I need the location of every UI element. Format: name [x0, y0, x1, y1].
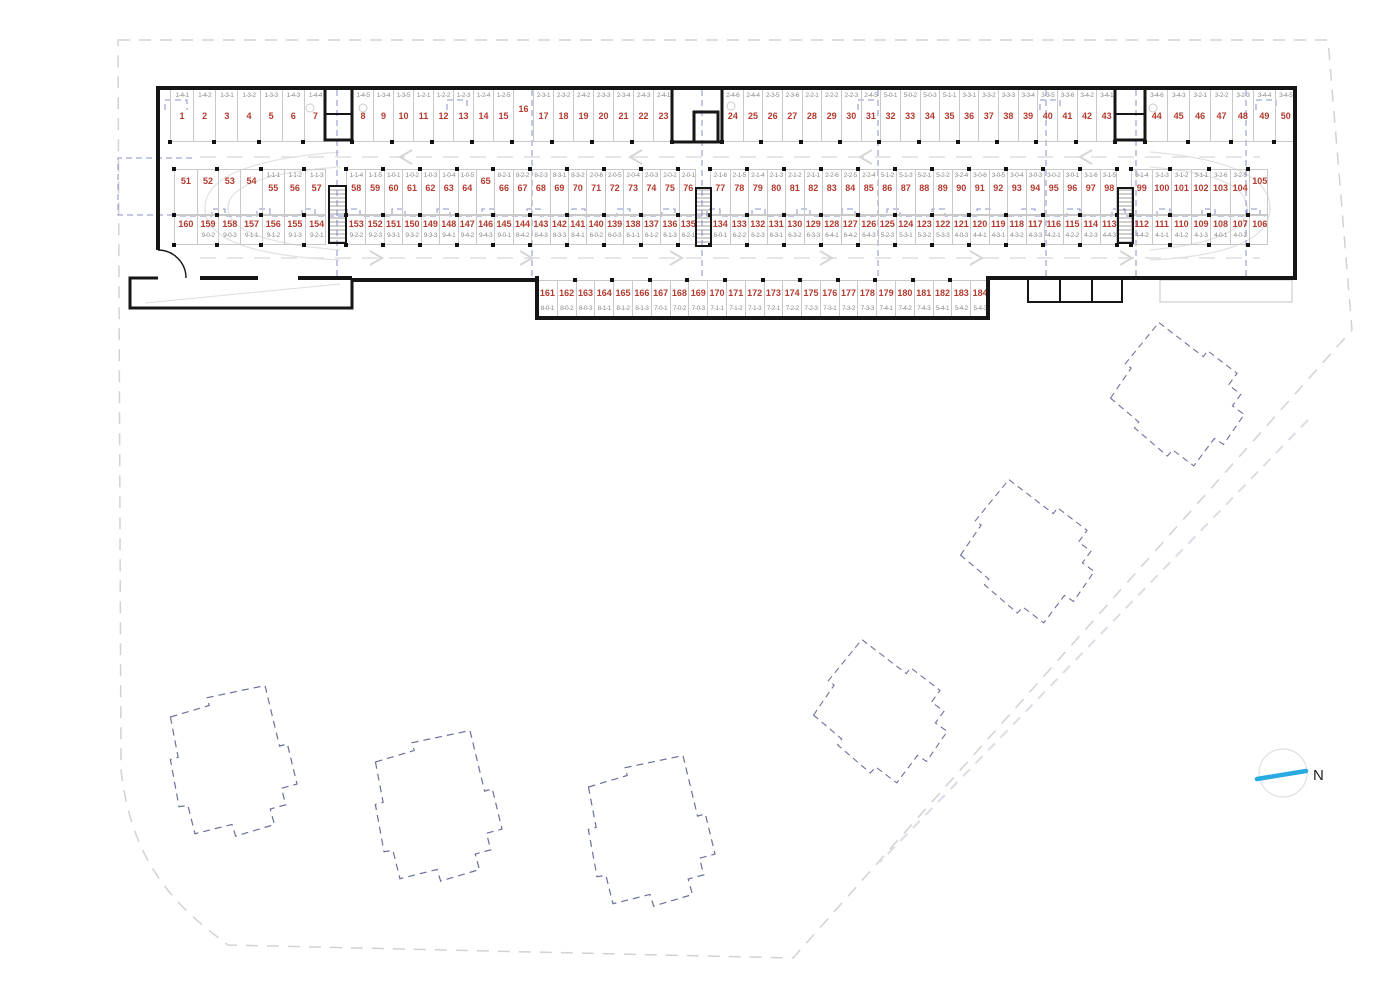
parking-stall: 54 [240, 170, 262, 214]
column-marker [745, 167, 749, 171]
column-marker [1074, 140, 1078, 144]
unit-code: 2-0-2 [663, 172, 676, 179]
column-marker [967, 213, 971, 217]
parking-stall: 3-0-493 [1007, 170, 1026, 214]
parking-stall: 3-2-247 [1210, 89, 1231, 141]
parking-stall: 1835-4-2 [951, 281, 970, 317]
stall-number: 22 [638, 111, 648, 121]
stall-number: 95 [1049, 183, 1059, 193]
stall-number: 172 [747, 288, 762, 298]
stall-number: 29 [827, 111, 837, 121]
unit-code: 2-4-2 [577, 92, 590, 99]
parking-stall: 1396-0-3 [605, 216, 623, 244]
parking-stall: 3-4-449 [1253, 89, 1274, 141]
unit-code: 2-3-2 [557, 92, 570, 99]
stall-number: 72 [610, 183, 620, 193]
column-marker [1168, 167, 1172, 171]
stall-number: 35 [944, 111, 954, 121]
stall-number: 8 [360, 111, 365, 121]
column-marker [168, 140, 172, 144]
stall-number: 42 [1082, 111, 1092, 121]
unit-code: 6-1-3 [663, 232, 676, 239]
column-marker [381, 167, 385, 171]
unit-code: 8-2-1 [497, 172, 510, 179]
unit-code: 5-3-1 [899, 232, 912, 239]
column-marker [1272, 140, 1276, 144]
unit-code: 6-2-1 [682, 232, 695, 239]
parking-stall: 1104-1-2 [1171, 216, 1191, 244]
column-marker [798, 316, 802, 320]
unit-code: 9-4-3 [479, 232, 492, 239]
column-marker [1246, 213, 1250, 217]
unit-code: 7-2-1 [767, 305, 780, 312]
stall-number: 93 [1012, 183, 1022, 193]
column-marker [1041, 243, 1045, 247]
column-marker [212, 140, 216, 144]
parking-stall: 1266-4-3 [859, 216, 878, 244]
stall-number: 135 [681, 219, 696, 229]
stall-number: 68 [536, 183, 546, 193]
parking-stall: 1144-2-3 [1081, 216, 1100, 244]
stall-number: 157 [244, 219, 259, 229]
stall-number: 136 [662, 219, 677, 229]
column-marker [350, 140, 354, 144]
stall-number: 152 [368, 219, 383, 229]
stall-number: 140 [589, 219, 604, 229]
unit-code: 3-1-1 [1194, 172, 1207, 179]
stall-number: 45 [1174, 111, 1184, 121]
parking-stall: 52 [197, 170, 219, 214]
unit-code: 3-0-2 [1047, 172, 1060, 179]
stall-number: 62 [425, 183, 435, 193]
unit-code: 7-1-1 [710, 305, 723, 312]
column-marker [720, 86, 724, 90]
unit-code: 5-2-1 [918, 172, 931, 179]
unit-code: 7-1-2 [729, 305, 742, 312]
stall-number: 67 [517, 183, 527, 193]
parking-stall: 3-4-143 [1096, 89, 1116, 141]
unit-code: 6-4-3 [862, 232, 875, 239]
floor-plan-canvas: N 1-4-111-4-221-3-131-3-241-3-351-4-361-… [0, 0, 1400, 989]
column-marker [1168, 243, 1172, 247]
stall-number: 176 [822, 288, 837, 298]
parking-stall: 2-4-425 [743, 89, 763, 141]
column-marker [1113, 140, 1117, 144]
unit-code: 9-0-3 [223, 232, 236, 239]
column-marker [259, 167, 263, 171]
parking-stall: 1-0-160 [384, 170, 402, 214]
unit-code: 2-1-4 [751, 172, 764, 179]
parking-stall: 1184-3-2 [1007, 216, 1026, 244]
parking-stall: 1134-4-3 [1100, 216, 1119, 244]
stall-number: 133 [732, 219, 747, 229]
parking-stall: 1154-2-2 [1063, 216, 1082, 244]
parking-stall: 1817-4-3 [914, 281, 933, 317]
unit-code: 4-4-2 [1135, 232, 1148, 239]
parking-stall: 1366-1-3 [660, 216, 678, 244]
stall-number: 128 [824, 219, 839, 229]
stall-number: 38 [1003, 111, 1013, 121]
parking-stall: 5-1-286 [878, 170, 897, 214]
parking-stall: 2-3-117 [533, 89, 553, 141]
stall-number: 43 [1102, 111, 1112, 121]
unit-code: 3-4-5 [1279, 92, 1292, 99]
stall-group: 1539-2-21529-2-31519-3-11509-3-21499-3-3… [346, 215, 696, 245]
stall-group: 1346-0-11336-2-21326-2-31316-3-11306-3-2… [710, 215, 1117, 245]
column-marker [676, 167, 680, 171]
column-marker [782, 243, 786, 247]
stall-number: 122 [935, 219, 950, 229]
parking-stall: 1727-1-3 [745, 281, 764, 317]
parking-stall: 1559-1-3 [284, 216, 306, 244]
unit-code: 6-2-2 [733, 232, 746, 239]
column-marker [1246, 167, 1250, 171]
unit-code: 3-3-3 [1002, 92, 1015, 99]
parking-stall: 3-2-348 [1232, 89, 1253, 141]
parking-stall: 1807-4-2 [895, 281, 914, 317]
column-marker [819, 213, 823, 217]
stall-number: 113 [1102, 219, 1117, 229]
stall-number: 75 [665, 183, 675, 193]
unit-code: 5-0-1 [884, 92, 897, 99]
column-marker [967, 167, 971, 171]
parking-stall: 1599-0-2 [197, 216, 219, 244]
column-marker [648, 316, 652, 320]
unit-code: 9-2-3 [369, 232, 382, 239]
parking-stall: 2-1-578 [730, 170, 749, 214]
parking-stall: 1376-1-2 [642, 216, 660, 244]
column-marker [565, 213, 569, 217]
column-marker [455, 213, 459, 217]
column-marker [745, 213, 749, 217]
column-marker [1229, 140, 1233, 144]
parking-stall: 160 [175, 216, 197, 244]
parking-stall: 2-3-218 [553, 89, 573, 141]
column-marker [930, 243, 934, 247]
parking-stall: 1214-0-3 [952, 216, 971, 244]
stall-number: 130 [787, 219, 802, 229]
stall-number: 90 [956, 183, 966, 193]
stall-number: 13 [458, 111, 468, 121]
stall-number: 111 [1155, 219, 1169, 229]
stall-number: 105 [1252, 176, 1267, 186]
stall-number: 144 [515, 219, 530, 229]
stall-number: 1 [180, 111, 185, 121]
parking-stall: 2-2-229 [821, 89, 841, 141]
parking-stall: 1-4-58 [353, 89, 373, 141]
unit-code: 3-4-3 [1172, 92, 1185, 99]
column-marker [676, 213, 680, 217]
stall-number: 44 [1152, 111, 1162, 121]
unit-code: 5-4-2 [955, 305, 968, 312]
parking-stall: 1489-4-1 [439, 216, 457, 244]
unit-code: 3-4-4 [1258, 92, 1271, 99]
parking-stall: 1777-3-2 [839, 281, 858, 317]
unit-code: 5-1-2 [881, 172, 894, 179]
unit-code: 1-2-3 [457, 92, 470, 99]
unit-code: 3-3-2 [982, 92, 995, 99]
stall-number: 181 [916, 288, 931, 298]
stall-group: 515253541-1-1551-1-2561-1-357 [174, 169, 326, 215]
column-marker [491, 243, 495, 247]
unit-code: 1-4-2 [198, 92, 211, 99]
stall-number: 179 [879, 288, 894, 298]
column-marker [1246, 243, 1250, 247]
column-marker [344, 243, 348, 247]
parking-stall: 1569-1-2 [262, 216, 284, 244]
unit-code: 8-2-2 [516, 172, 529, 179]
column-marker [259, 213, 263, 217]
column-marker [491, 213, 495, 217]
stall-number: 155 [287, 219, 302, 229]
stall-number: 19 [578, 111, 588, 121]
unit-code: 1-4-4 [309, 92, 322, 99]
unit-code: 1-3-2 [242, 92, 255, 99]
stall-number: 147 [460, 219, 475, 229]
column-marker [1207, 243, 1211, 247]
unit-code: 4-0-1 [1214, 232, 1227, 239]
parking-stall: 1225-3-3 [933, 216, 952, 244]
stall-number: 77 [715, 183, 725, 193]
stall-group: 3-1-4993-1-31003-1-21013-1-11023-2-61033… [1131, 169, 1268, 215]
stall-number: 80 [771, 183, 781, 193]
stall-number: 149 [423, 219, 438, 229]
column-marker [418, 167, 422, 171]
column-marker [344, 213, 348, 217]
parking-stall: 1459-0-1 [494, 216, 512, 244]
unit-code: 2-1-2 [788, 172, 801, 179]
stall-number: 116 [1046, 219, 1061, 229]
column-marker [630, 86, 634, 90]
column-marker [1078, 213, 1082, 217]
column-marker [995, 86, 999, 90]
column-marker [995, 140, 999, 144]
parking-stall: 1245-3-1 [896, 216, 915, 244]
column-marker [639, 167, 643, 171]
parking-stall: 1579-1-1 [240, 216, 262, 244]
parking-stall: 65 [476, 170, 494, 214]
unit-code: 1-3-4 [377, 92, 390, 99]
column-marker [986, 278, 990, 282]
column-marker [956, 86, 960, 90]
parking-stall: 8-2-368 [531, 170, 549, 214]
stall-number: 124 [898, 219, 913, 229]
unit-code: 3-1-5 [1103, 172, 1116, 179]
stall-number: 169 [691, 288, 706, 298]
parking-stall: 1499-3-3 [421, 216, 439, 244]
column-marker [455, 167, 459, 171]
stall-number: 153 [349, 219, 364, 229]
parking-stall: 3-3-338 [998, 89, 1018, 141]
unit-code: 1-4-3 [287, 92, 300, 99]
column-marker [838, 86, 842, 90]
parking-stall: 1668-1-3 [632, 281, 651, 317]
parking-stall: 2-2-485 [859, 170, 878, 214]
parking-stall: 5-1-135 [939, 89, 959, 141]
unit-code: 1-4-5 [356, 92, 369, 99]
stall-number: 36 [964, 111, 974, 121]
unit-code: 9-2-1 [310, 232, 323, 239]
parking-stall: 1-2-212 [433, 89, 453, 141]
parking-stall: 1-3-24 [237, 89, 259, 141]
stall-number: 59 [370, 183, 380, 193]
parking-stall: 5-0-334 [920, 89, 940, 141]
stall-number: 24 [728, 111, 738, 121]
unit-code: 1-1-3 [310, 172, 323, 179]
stall-number: 125 [880, 219, 895, 229]
column-marker [877, 86, 881, 90]
column-marker [799, 140, 803, 144]
column-marker [390, 86, 394, 90]
column-marker [257, 140, 261, 144]
unit-code: 2-2-2 [825, 92, 838, 99]
column-marker [535, 278, 539, 282]
column-marker [1115, 243, 1119, 247]
stall-number: 70 [573, 183, 583, 193]
unit-code: 3-2-6 [1214, 172, 1227, 179]
column-marker [390, 140, 394, 144]
column-marker [565, 243, 569, 247]
stall-number: 160 [178, 219, 193, 229]
unit-code: 7-2-3 [804, 305, 817, 312]
stall-number: 11 [419, 111, 429, 121]
unit-code: 2-3-4 [617, 92, 630, 99]
stall-number: 141 [570, 219, 585, 229]
unit-code: 9-4-1 [442, 232, 455, 239]
unit-code: 8-0-1 [541, 305, 554, 312]
parking-stall: 3-3-641 [1057, 89, 1077, 141]
parking-stall: 5-1-387 [896, 170, 915, 214]
column-marker [911, 278, 915, 282]
stall-number: 115 [1065, 219, 1080, 229]
column-marker [535, 316, 539, 320]
unit-code: 7-2-2 [786, 305, 799, 312]
stall-number: 183 [954, 288, 969, 298]
unit-code: 5-0-2 [904, 92, 917, 99]
parking-stall: 8-3-169 [550, 170, 568, 214]
column-marker [573, 278, 577, 282]
parking-stall: 2-1-182 [804, 170, 823, 214]
column-marker [257, 86, 261, 90]
unit-code: 9-0-2 [201, 232, 214, 239]
parking-stall: 1757-2-3 [801, 281, 820, 317]
unit-code: 2-2-4 [862, 172, 875, 179]
parking-stall: 1658-1-2 [613, 281, 632, 317]
unit-code: 1-4-1 [175, 92, 188, 99]
parking-stall: 1797-4-1 [876, 281, 895, 317]
column-marker [917, 86, 921, 90]
column-marker [1034, 140, 1038, 144]
stall-number: 54 [246, 176, 256, 186]
stall-number: 100 [1154, 183, 1169, 193]
column-marker [1115, 167, 1119, 171]
column-marker [1168, 213, 1172, 217]
column-marker [639, 213, 643, 217]
parking-stall: 5-0-233 [900, 89, 920, 141]
parking-stall: 1-1-256 [284, 170, 306, 214]
column-marker [1143, 140, 1147, 144]
parking-stall: 3-0-691 [970, 170, 989, 214]
parking-stall: 1469-4-3 [476, 216, 494, 244]
unit-code: 5-3-3 [936, 232, 949, 239]
column-marker [873, 316, 877, 320]
parking-stall: 1648-1-1 [594, 281, 613, 317]
column-marker [1078, 243, 1082, 247]
unit-code: 3-3-5 [1041, 92, 1054, 99]
column-marker [893, 167, 897, 171]
unit-code: 4-0-3 [955, 232, 968, 239]
stall-number: 151 [386, 219, 401, 229]
unit-code: 8-3-1 [553, 172, 566, 179]
column-marker [528, 243, 532, 247]
stall-number: 146 [478, 219, 493, 229]
parking-stall: 1687-0-2 [670, 281, 689, 317]
stall-number: 89 [938, 183, 948, 193]
stall-number: 65 [481, 176, 491, 186]
unit-code: 9-0-1 [497, 232, 510, 239]
unit-code: 5-2-2 [936, 172, 949, 179]
column-marker [798, 278, 802, 282]
parking-stall: 3-0-592 [989, 170, 1008, 214]
stall-number: 64 [462, 183, 472, 193]
column-marker [856, 167, 860, 171]
column-marker [215, 213, 219, 217]
unit-code: 3-0-4 [1010, 172, 1023, 179]
column-marker [1143, 86, 1147, 90]
column-marker [708, 243, 712, 247]
parking-stall: 1124-4-2 [1132, 216, 1152, 244]
parking-stall: 3-2-6103 [1210, 170, 1230, 214]
stall-number: 34 [925, 111, 935, 121]
parking-stalls-layer: 1-4-111-4-221-3-131-3-241-3-351-4-361-4-… [0, 0, 1400, 989]
parking-stall: 5-2-188 [915, 170, 934, 214]
stall-number: 168 [672, 288, 687, 298]
parking-stall: 2-0-275 [660, 170, 678, 214]
column-marker [917, 140, 921, 144]
unit-code: 3-3-6 [1061, 92, 1074, 99]
stall-number: 148 [441, 219, 456, 229]
parking-stall: 1356-2-1 [679, 216, 697, 244]
unit-code: 1-1-1 [267, 172, 280, 179]
parking-stall: 2-2-584 [841, 170, 860, 214]
column-marker [550, 86, 554, 90]
column-marker [491, 167, 495, 171]
unit-code: 8-1-2 [616, 305, 629, 312]
stall-number: 60 [389, 183, 399, 193]
unit-code: 5-3-2 [918, 232, 931, 239]
parking-stall: 1509-3-2 [402, 216, 420, 244]
stall-number: 12 [438, 111, 448, 121]
column-marker [602, 167, 606, 171]
unit-code: 2-3-6 [786, 92, 799, 99]
stall-number: 4 [246, 111, 251, 121]
parking-stall: 1-1-559 [365, 170, 383, 214]
unit-code: 2-1-3 [770, 172, 783, 179]
column-marker [819, 167, 823, 171]
column-marker [1004, 213, 1008, 217]
unit-code: 6-0-3 [608, 232, 621, 239]
unit-code: 3-0-5 [992, 172, 1005, 179]
column-marker [782, 213, 786, 217]
parking-stall: 3-4-345 [1167, 89, 1188, 141]
parking-stall: 1074-0-2 [1230, 216, 1250, 244]
unit-code: 3-1-6 [1084, 172, 1097, 179]
unit-code: 2-4-1 [657, 92, 670, 99]
column-marker [302, 243, 306, 247]
parking-stall: 5-2-289 [933, 170, 952, 214]
column-marker [565, 167, 569, 171]
unit-code: 3-2-5 [1234, 172, 1247, 179]
